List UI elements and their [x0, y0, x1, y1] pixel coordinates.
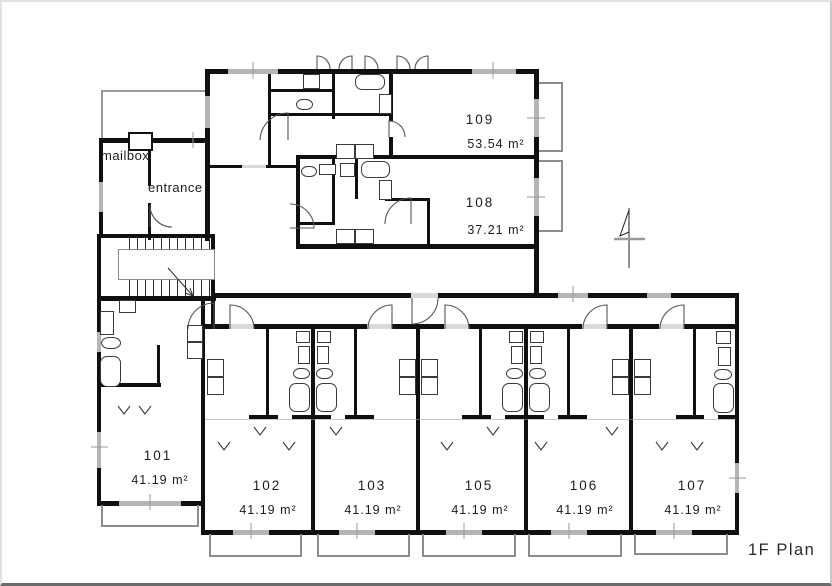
balcony-outline: [317, 534, 410, 557]
floor-plan-canvas: mailbox entrance 101 41.19 m² 102 41.19 …: [0, 0, 832, 586]
wall: [479, 324, 482, 419]
closet-icon: [379, 180, 392, 200]
balcony-outline: [634, 534, 728, 555]
swing-mark: [139, 406, 151, 414]
toilet-icon: [293, 368, 310, 379]
entrance-label: entrance: [148, 180, 203, 195]
wall: [693, 324, 696, 419]
wall: [205, 69, 210, 241]
toilet-icon: [316, 368, 333, 379]
door-arc: [415, 56, 428, 69]
bathtub-icon: [355, 74, 385, 90]
unit-108-area: 37.21 m²: [452, 223, 540, 237]
unit-103-area: 41.19 m²: [327, 503, 419, 517]
closet-icon: [303, 74, 320, 89]
swing-mark: [656, 442, 668, 450]
kitchen-counter-icon: [336, 144, 374, 159]
sink-icon: [100, 311, 114, 335]
wall: [268, 113, 392, 116]
door-arc: [385, 198, 411, 224]
toilet-icon: [529, 368, 546, 379]
wall: [354, 324, 357, 419]
closet-icon: [530, 331, 544, 343]
wall: [99, 138, 210, 143]
wall: [296, 244, 539, 249]
door-threshold: [444, 324, 469, 329]
door-threshold: [659, 324, 684, 329]
bathtub-icon: [100, 356, 121, 387]
swing-mark: [441, 442, 453, 450]
window: [97, 432, 101, 468]
toilet-icon: [101, 337, 121, 349]
canopy-line: [101, 90, 207, 92]
bathtub-icon: [316, 383, 337, 412]
unit-105-area: 41.19 m²: [434, 503, 526, 517]
window: [647, 293, 671, 298]
unit-107-area: 41.19 m²: [647, 503, 739, 517]
closet-icon: [716, 331, 731, 344]
door-gap: [411, 293, 438, 298]
swing-mark: [330, 427, 342, 435]
door-arc: [339, 56, 352, 69]
door-threshold: [367, 324, 392, 329]
wall: [296, 155, 300, 249]
door-gap: [704, 415, 718, 419]
swing-mark: [606, 427, 618, 435]
wall: [355, 159, 358, 199]
canopy-line: [101, 90, 103, 140]
wall: [567, 324, 570, 419]
closet-icon: [509, 331, 523, 343]
wall: [157, 345, 160, 387]
door-gap: [278, 415, 292, 419]
sink-icon: [379, 94, 392, 114]
door-threshold: [229, 324, 254, 329]
kitchen-counter-icon: [634, 359, 651, 395]
window: [228, 69, 278, 74]
bathtub-icon: [502, 383, 523, 412]
unit-107-label: 107: [655, 478, 729, 493]
door-threshold: [582, 324, 607, 329]
toilet-icon: [296, 99, 313, 110]
kitchen-counter-icon: [336, 229, 374, 244]
balcony-outline: [539, 160, 563, 232]
door-gap: [544, 415, 558, 419]
door-arc: [260, 113, 288, 140]
door-arc: [150, 205, 172, 227]
door-gap: [242, 165, 266, 168]
balcony-outline: [539, 82, 563, 152]
sink-icon: [298, 346, 310, 364]
unit-106-area: 41.19 m²: [539, 503, 631, 517]
swing-mark: [118, 406, 130, 414]
closet-icon: [296, 331, 310, 343]
closet-icon: [119, 300, 136, 313]
closet-icon: [317, 331, 331, 343]
unit-106-label: 106: [547, 478, 621, 493]
wall: [268, 89, 334, 92]
toilet-icon: [301, 166, 317, 177]
window: [558, 293, 588, 298]
bathtub-icon: [529, 383, 550, 412]
unit-102-area: 41.19 m²: [222, 503, 314, 517]
balcony-outline: [422, 534, 516, 557]
swing-mark: [283, 442, 295, 450]
bathtub-icon: [361, 161, 390, 178]
swing-mark: [487, 427, 499, 435]
wall: [298, 222, 335, 225]
unit-108-label: 108: [454, 195, 506, 210]
swing-mark: [691, 442, 703, 450]
swing-mark: [535, 442, 547, 450]
wall: [266, 324, 269, 419]
plan-title: 1F Plan: [748, 541, 815, 560]
wall: [735, 293, 739, 535]
door-arc: [317, 56, 330, 69]
wall: [332, 69, 335, 119]
toilet-icon: [506, 368, 523, 379]
door-arc: [365, 56, 378, 69]
hall-line: [205, 419, 735, 420]
kitchen-counter-icon: [399, 359, 416, 395]
bathtub-icon: [289, 383, 310, 412]
unit-105-label: 105: [442, 478, 516, 493]
door-arc: [397, 56, 410, 69]
sink-icon: [317, 346, 329, 364]
door-arc: [412, 298, 438, 324]
unit-101-area: 41.19 m²: [118, 473, 202, 487]
balcony-outline: [101, 505, 199, 527]
mailbox-label: mailbox: [101, 148, 149, 163]
sink-icon: [718, 347, 731, 366]
door-arc: [389, 121, 405, 137]
window: [472, 69, 516, 74]
north-arrow-icon: [614, 208, 645, 268]
toilet-icon: [714, 369, 732, 380]
swing-mark: [254, 427, 266, 435]
sink-icon: [319, 164, 336, 175]
unit-109-area: 53.54 m²: [452, 137, 540, 151]
window: [735, 463, 739, 493]
sink-icon: [511, 346, 523, 364]
swing-mark: [218, 442, 230, 450]
window: [99, 182, 103, 212]
balcony-outline: [528, 534, 622, 557]
wall: [97, 296, 216, 301]
door-gap: [491, 415, 505, 419]
window: [205, 96, 210, 128]
closet-icon: [340, 163, 355, 177]
kitchen-counter-icon: [207, 359, 224, 395]
bathtub-icon: [713, 383, 734, 413]
door-gap: [331, 415, 345, 419]
kitchen-counter-icon: [187, 325, 203, 359]
wall: [427, 198, 430, 246]
unit-103-label: 103: [335, 478, 409, 493]
balcony-outline: [209, 534, 302, 557]
wall: [389, 137, 393, 159]
wall: [268, 69, 271, 167]
unit-109-label: 109: [454, 112, 506, 127]
unit-101-label: 101: [128, 448, 188, 463]
kitchen-counter-icon: [612, 359, 629, 395]
stairs-outline: [118, 249, 215, 280]
unit-102-label: 102: [230, 478, 304, 493]
sink-icon: [530, 346, 542, 364]
kitchen-counter-icon: [421, 359, 438, 395]
